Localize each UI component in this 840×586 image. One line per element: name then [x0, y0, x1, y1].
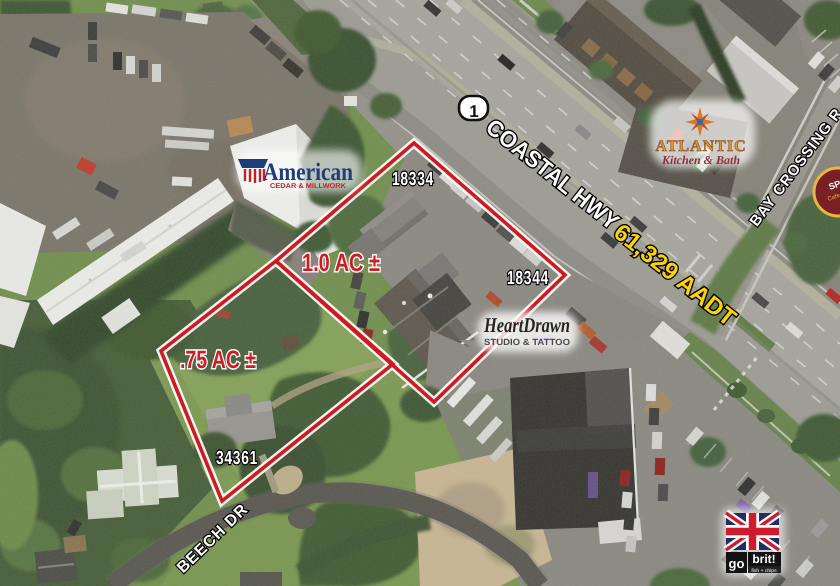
svg-text:34361: 34361	[216, 448, 258, 469]
svg-text:brit!: brit!	[752, 552, 775, 566]
svg-text:go: go	[729, 556, 745, 571]
svg-text:18334: 18334	[392, 169, 434, 190]
svg-text:.75 AC ±: .75 AC ±	[180, 346, 256, 374]
svg-text:18344: 18344	[507, 268, 549, 289]
svg-text:fish + chips: fish + chips	[751, 568, 777, 574]
svg-text:HeartDrawn: HeartDrawn	[483, 313, 570, 337]
svg-text:STUDIO & TATTOO: STUDIO & TATTOO	[484, 337, 570, 347]
svg-text:1: 1	[469, 102, 478, 121]
svg-text:CEDAR & MILLWORK: CEDAR & MILLWORK	[270, 183, 346, 190]
svg-text:American: American	[263, 159, 353, 186]
svg-text:1.0 AC ±: 1.0 AC ±	[302, 249, 380, 277]
svg-text:Kitchen & Bath: Kitchen & Bath	[661, 153, 740, 167]
